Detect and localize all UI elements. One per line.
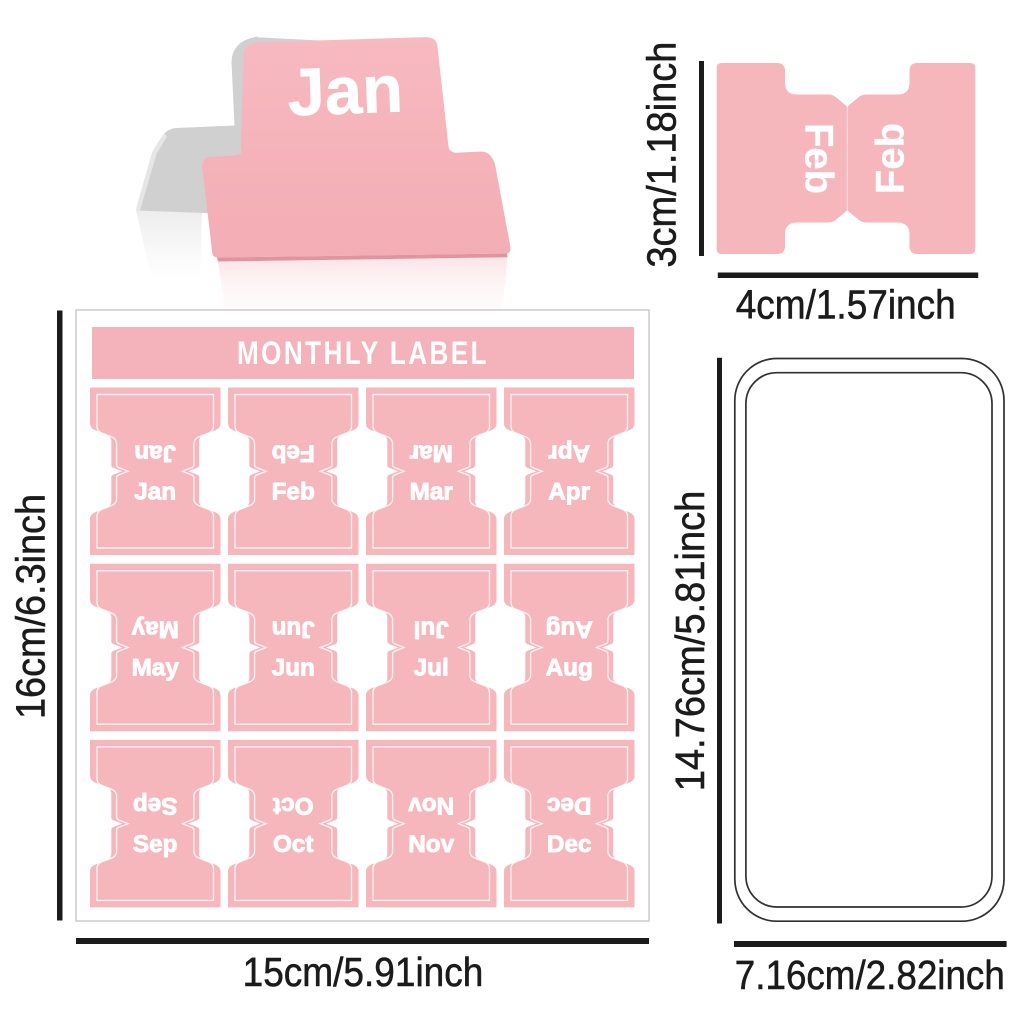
svg-text:14.76cm/5.81inch: 14.76cm/5.81inch: [667, 491, 713, 792]
svg-text:Oct: Oct: [273, 792, 314, 819]
svg-text:Jan: Jan: [286, 52, 404, 131]
svg-text:16cm/6.3inch: 16cm/6.3inch: [8, 494, 54, 719]
svg-text:Mar: Mar: [410, 479, 454, 506]
svg-text:Jul: Jul: [414, 616, 449, 643]
svg-text:Aug: Aug: [546, 616, 593, 643]
svg-text:Sep: Sep: [133, 792, 178, 819]
svg-text:Dec: Dec: [547, 831, 592, 858]
svg-text:Jul: Jul: [414, 655, 449, 682]
svg-text:Dec: Dec: [547, 792, 592, 819]
svg-text:Feb: Feb: [272, 479, 315, 506]
svg-text:Jun: Jun: [272, 655, 315, 682]
svg-text:Aug: Aug: [546, 655, 593, 682]
svg-text:Oct: Oct: [273, 831, 314, 858]
svg-text:Sep: Sep: [133, 831, 178, 858]
svg-text:Jan: Jan: [134, 479, 176, 506]
svg-text:Apr: Apr: [548, 479, 590, 506]
svg-text:Apr: Apr: [548, 440, 590, 467]
svg-text:May: May: [132, 655, 180, 682]
svg-text:Nov: Nov: [408, 831, 454, 858]
svg-text:Jun: Jun: [272, 616, 315, 643]
svg-text:Feb: Feb: [797, 123, 841, 194]
svg-text:MONTHLY LABEL: MONTHLY LABEL: [237, 335, 489, 371]
svg-text:7.16cm/2.82inch: 7.16cm/2.82inch: [735, 952, 1005, 998]
svg-text:Jan: Jan: [134, 440, 176, 467]
svg-text:Feb: Feb: [272, 440, 315, 467]
svg-text:May: May: [131, 616, 179, 643]
svg-text:3cm/1.18inch: 3cm/1.18inch: [639, 42, 685, 268]
svg-text:15cm/5.91inch: 15cm/5.91inch: [243, 949, 484, 995]
svg-text:Mar: Mar: [409, 440, 453, 467]
svg-text:Feb: Feb: [869, 123, 913, 194]
svg-text:Nov: Nov: [408, 792, 454, 819]
svg-text:4cm/1.57inch: 4cm/1.57inch: [736, 282, 956, 328]
